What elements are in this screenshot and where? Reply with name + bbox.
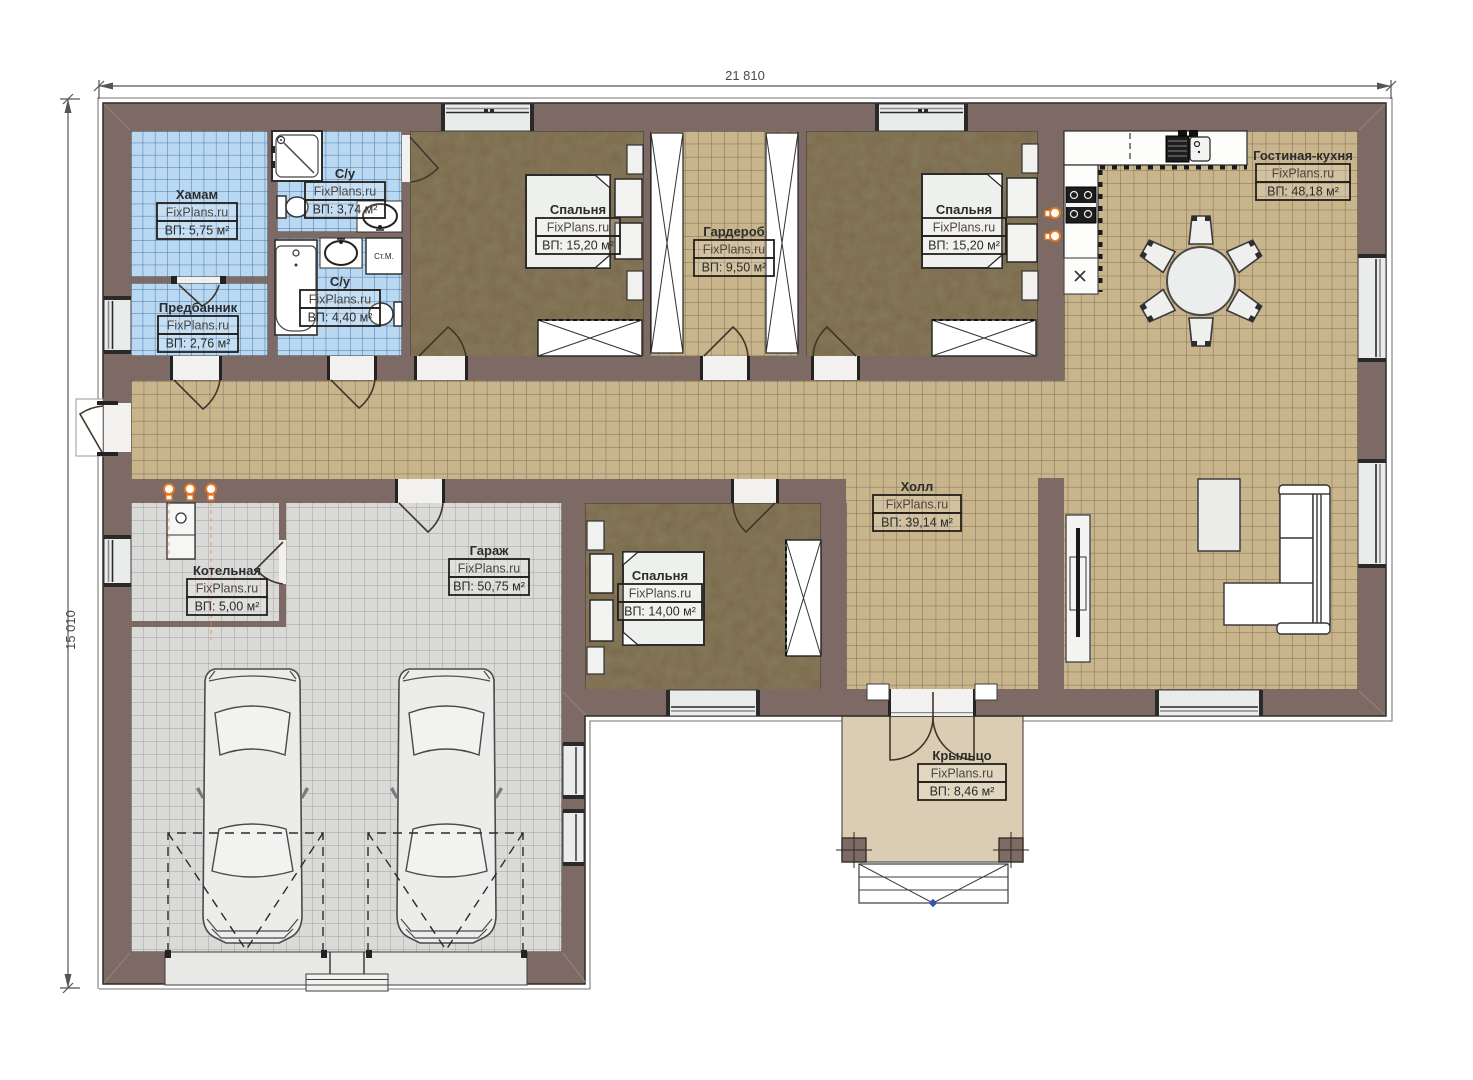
svg-text:FixPlans.ru: FixPlans.ru	[629, 587, 692, 601]
svg-text:FixPlans.ru: FixPlans.ru	[933, 221, 996, 235]
svg-text:21 810: 21 810	[725, 68, 765, 83]
svg-text:Спальня: Спальня	[632, 568, 688, 583]
svg-text:FixPlans.ru: FixPlans.ru	[166, 206, 229, 220]
svg-text:Гостиная-кухня: Гостиная-кухня	[1253, 148, 1353, 163]
svg-text:Гараж: Гараж	[470, 543, 510, 558]
svg-text:FixPlans.ru: FixPlans.ru	[703, 243, 766, 257]
svg-text:FixPlans.ru: FixPlans.ru	[886, 498, 949, 512]
svg-text:ВП: 5,75 м²: ВП: 5,75 м²	[165, 224, 230, 238]
svg-text:FixPlans.ru: FixPlans.ru	[1272, 167, 1335, 181]
svg-text:Спальня: Спальня	[936, 202, 992, 217]
svg-text:Хамам: Хамам	[176, 187, 218, 202]
svg-text:Предбанник: Предбанник	[159, 300, 238, 315]
svg-text:15 010: 15 010	[63, 610, 78, 650]
svg-text:FixPlans.ru: FixPlans.ru	[931, 767, 994, 781]
svg-text:Спальня: Спальня	[550, 202, 606, 217]
svg-text:FixPlans.ru: FixPlans.ru	[547, 221, 610, 235]
svg-text:FixPlans.ru: FixPlans.ru	[196, 582, 259, 596]
svg-text:ВП: 14,00 м²: ВП: 14,00 м²	[624, 605, 696, 619]
svg-text:ВП: 9,50 м²: ВП: 9,50 м²	[702, 261, 767, 275]
svg-text:Холл: Холл	[901, 479, 934, 494]
svg-text:ВП: 15,20 м²: ВП: 15,20 м²	[928, 239, 1000, 253]
svg-text:ВП: 5,00 м²: ВП: 5,00 м²	[195, 600, 260, 614]
svg-text:С/у: С/у	[335, 166, 356, 181]
svg-text:ВП: 2,76 м²: ВП: 2,76 м²	[166, 337, 231, 351]
svg-text:Ст.М.: Ст.М.	[374, 252, 394, 261]
svg-text:ВП: 39,14 м²: ВП: 39,14 м²	[881, 516, 953, 530]
svg-text:FixPlans.ru: FixPlans.ru	[167, 319, 230, 333]
svg-text:ВП: 4,40 м²: ВП: 4,40 м²	[308, 311, 373, 325]
svg-text:Крыльцо: Крыльцо	[932, 748, 991, 763]
svg-text:ВП: 48,18 м²: ВП: 48,18 м²	[1267, 185, 1339, 199]
svg-text:FixPlans.ru: FixPlans.ru	[314, 185, 377, 199]
svg-text:FixPlans.ru: FixPlans.ru	[458, 562, 521, 576]
svg-text:FixPlans.ru: FixPlans.ru	[309, 293, 372, 307]
svg-text:ВП: 50,75 м²: ВП: 50,75 м²	[453, 580, 525, 594]
svg-text:ВП: 15,20 м²: ВП: 15,20 м²	[542, 239, 614, 253]
svg-text:Гардероб: Гардероб	[703, 224, 764, 239]
svg-text:Котельная: Котельная	[193, 563, 261, 578]
svg-text:С/у: С/у	[330, 274, 351, 289]
svg-text:ВП: 8,46 м²: ВП: 8,46 м²	[930, 785, 995, 799]
svg-text:ВП: 3,74 м²: ВП: 3,74 м²	[313, 203, 378, 217]
